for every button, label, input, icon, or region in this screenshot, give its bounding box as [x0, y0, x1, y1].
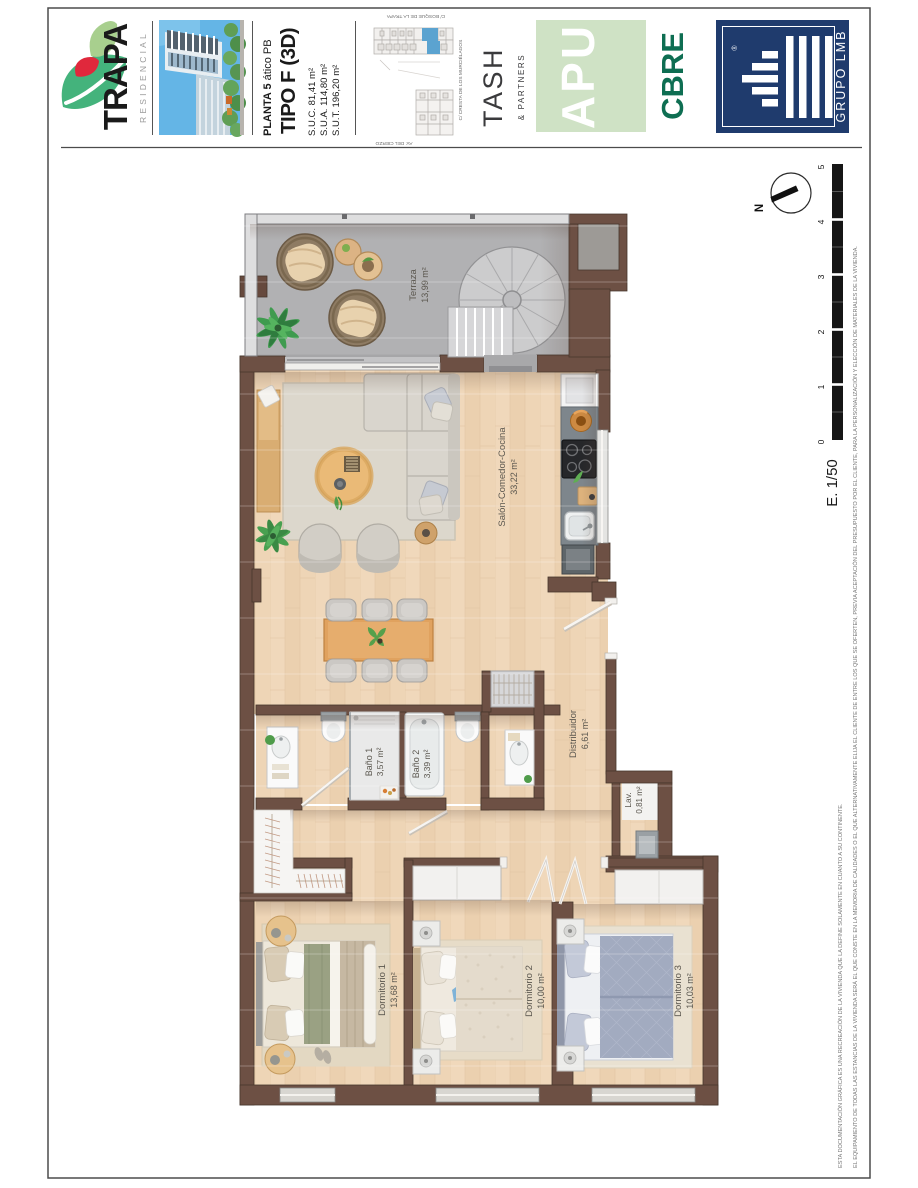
- svg-text:Baño 2: Baño 2: [411, 750, 421, 779]
- svg-text:3,57 m²: 3,57 m²: [375, 747, 385, 776]
- svg-text:C/ CRESTA DE LOS MURCIÉLAGOS: C/ CRESTA DE LOS MURCIÉLAGOS: [457, 40, 464, 121]
- svg-text:N: N: [754, 204, 766, 212]
- svg-text:E. 1/50: E. 1/50: [824, 459, 841, 507]
- svg-text:3: 3: [816, 274, 826, 279]
- svg-text:4: 4: [816, 219, 826, 224]
- svg-text:ESTA DOCUMENTACIÓN GRÁFICA ES: ESTA DOCUMENTACIÓN GRÁFICA ES UNA RECREA…: [837, 803, 844, 1168]
- svg-text:3,39 m²: 3,39 m²: [422, 749, 432, 778]
- svg-text:EL EQUIPAMIENTO DE TODAS LAS E: EL EQUIPAMIENTO DE TODAS LAS ESTANCIAS D…: [852, 246, 859, 1168]
- svg-text:Dormitorio 3: Dormitorio 3: [673, 965, 684, 1017]
- svg-text:& PARTNERS: & PARTNERS: [517, 54, 526, 120]
- svg-text:TIPO F (3D): TIPO F (3D): [277, 28, 300, 134]
- svg-text:RESIDENCIAL: RESIDENCIAL: [138, 31, 148, 123]
- svg-text:0,81 m²: 0,81 m²: [635, 786, 644, 813]
- svg-text:Lav.: Lav.: [623, 792, 633, 807]
- svg-text:TASH: TASH: [478, 47, 508, 127]
- svg-text:Salón-Comedor-Cocina: Salón-Comedor-Cocina: [497, 427, 508, 527]
- svg-text:33,22 m²: 33,22 m²: [509, 459, 519, 495]
- svg-text:6,61 m²: 6,61 m²: [580, 719, 590, 750]
- svg-text:PLANTA 5 ático PB: PLANTA 5 ático PB: [262, 39, 274, 136]
- svg-text:10,00 m²: 10,00 m²: [536, 973, 546, 1009]
- svg-text:Dormitorio 2: Dormitorio 2: [524, 965, 535, 1017]
- svg-text:CBRE: CBRE: [655, 32, 690, 120]
- svg-text:2: 2: [816, 329, 826, 334]
- svg-text:5: 5: [816, 164, 826, 169]
- svg-text:Terraza: Terraza: [408, 268, 419, 300]
- svg-text:C/ BOSQUE DE LA TRAPA: C/ BOSQUE DE LA TRAPA: [386, 13, 445, 19]
- svg-text:TRAPA: TRAPA: [97, 24, 134, 130]
- svg-text:S.U.C. 81,41 m²: S.U.C. 81,41 m²: [307, 68, 318, 136]
- svg-text:®: ®: [731, 45, 739, 51]
- svg-text:APU: APU: [552, 23, 604, 129]
- svg-text:Dormitorio 1: Dormitorio 1: [377, 964, 388, 1016]
- svg-text:1: 1: [816, 384, 826, 389]
- svg-text:AV. DEL CIERZO: AV. DEL CIERZO: [375, 140, 412, 146]
- svg-text:Distribuidor: Distribuidor: [568, 710, 579, 758]
- svg-text:GRUPO LMB: GRUPO LMB: [834, 29, 848, 122]
- svg-text:13,99 m²: 13,99 m²: [420, 267, 430, 303]
- svg-text:S.U.A. 114,80 m²: S.U.A. 114,80 m²: [319, 64, 330, 136]
- svg-text:13,68 m²: 13,68 m²: [389, 972, 399, 1008]
- svg-text:Baño 1: Baño 1: [364, 748, 374, 777]
- svg-text:S.U.T. 196,20 m²: S.U.T. 196,20 m²: [331, 65, 342, 136]
- svg-text:10,03 m²: 10,03 m²: [685, 973, 695, 1009]
- svg-text:0: 0: [816, 439, 826, 444]
